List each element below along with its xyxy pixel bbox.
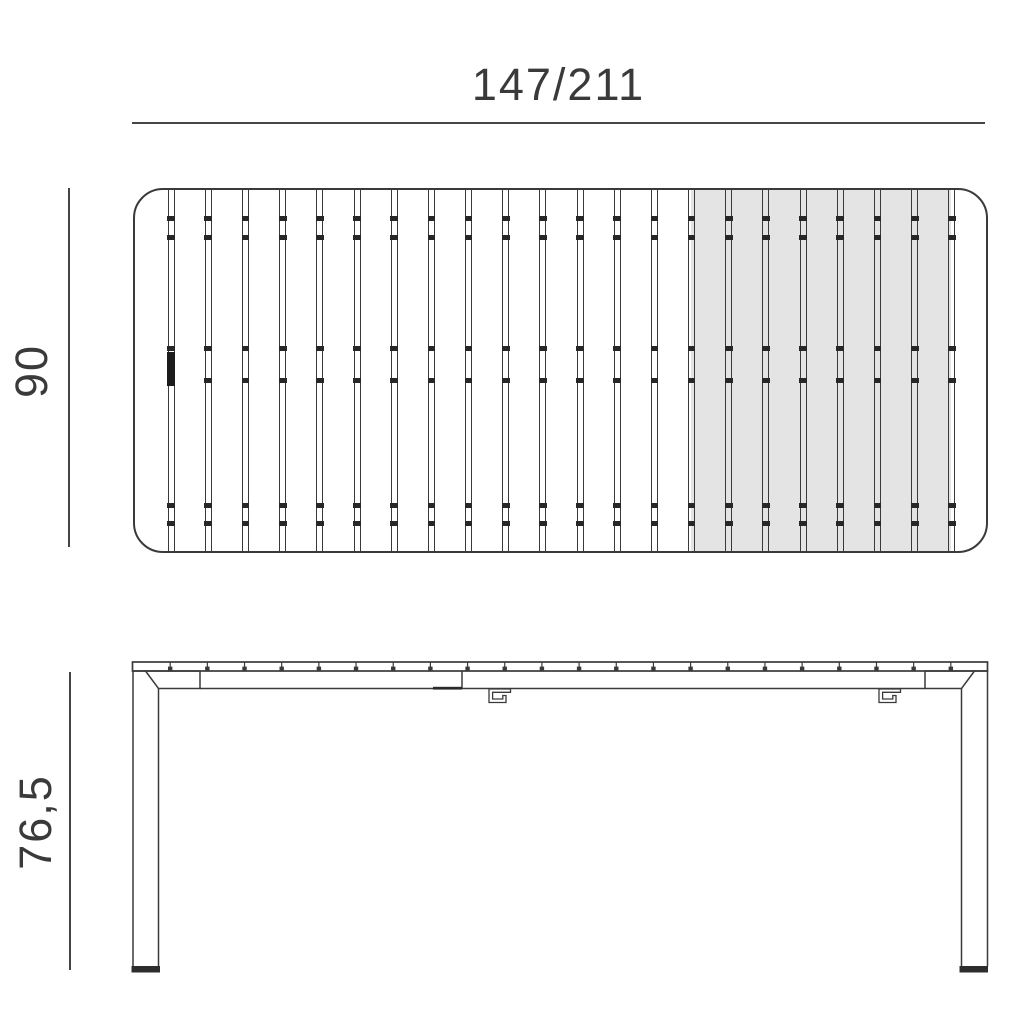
- slat-joint-tick: [836, 503, 844, 508]
- slat-joint-tick: [242, 521, 250, 526]
- side-left-hook: [489, 689, 511, 703]
- slat-joint-tick: [613, 346, 621, 351]
- slat-joint-tick: [204, 521, 212, 526]
- slat-joint-tick: [948, 503, 956, 508]
- slat-joint-tick: [576, 216, 584, 221]
- slat-joint-tick: [688, 521, 696, 526]
- dimension-line-length: [132, 122, 985, 124]
- slat-joint-tick: [725, 503, 733, 508]
- slat-joint-tick: [502, 216, 510, 221]
- slat-divider: [242, 190, 249, 551]
- slat-joint-tick: [502, 235, 510, 240]
- slat-joint-tick: [242, 235, 250, 240]
- slat-joint-tick: [576, 235, 584, 240]
- slat-joint-tick: [390, 378, 398, 383]
- slat-joint-tick: [428, 346, 436, 351]
- slat-joint-tick: [167, 503, 175, 508]
- slat-joint-tick: [762, 503, 770, 508]
- slat-divider: [465, 190, 472, 551]
- slat-joint-tick: [353, 378, 361, 383]
- slat-joint-tick: [353, 346, 361, 351]
- slat-joint-tick: [836, 346, 844, 351]
- slat-joint-tick: [242, 216, 250, 221]
- dimension-line-depth: [68, 188, 70, 547]
- side-tabletop-slab: [133, 662, 988, 671]
- slat-joint-tick: [762, 378, 770, 383]
- slat-joint-tick: [874, 216, 882, 221]
- slat-joint-tick: [613, 216, 621, 221]
- slat-joint-tick: [465, 503, 473, 508]
- slat-joint-tick: [874, 346, 882, 351]
- slat-joint-tick: [279, 378, 287, 383]
- slat-joint-tick: [948, 235, 956, 240]
- slat-joint-tick: [725, 235, 733, 240]
- side-slat-joints: [168, 663, 953, 672]
- slat-joint-tick: [836, 235, 844, 240]
- slat-joint-tick: [353, 521, 361, 526]
- slat-joint-tick: [316, 235, 324, 240]
- side-right-bracket: [925, 671, 975, 689]
- slat-joint-tick: [762, 346, 770, 351]
- slat-joint-tick: [799, 378, 807, 383]
- slat-joint-tick: [688, 235, 696, 240]
- slat-joint-tick: [948, 378, 956, 383]
- slat-joint-tick: [651, 346, 659, 351]
- slat-joint-tick: [613, 503, 621, 508]
- slat-joint-tick: [651, 378, 659, 383]
- slat-joint-tick: [390, 235, 398, 240]
- slat-joint-tick: [539, 378, 547, 383]
- slat-joint-tick: [465, 378, 473, 383]
- slat-divider: [874, 190, 881, 551]
- slat-divider: [651, 190, 658, 551]
- slat-joint-tick: [204, 378, 212, 383]
- slat-joint-tick: [613, 378, 621, 383]
- slat-joint-tick: [576, 346, 584, 351]
- dimension-label-length: 147/211: [132, 62, 985, 107]
- slat-joint-tick: [428, 235, 436, 240]
- side-right-hook: [879, 689, 901, 703]
- slat-divider: [725, 190, 732, 551]
- side-left-foot: [132, 966, 161, 973]
- slat-joint-tick: [465, 216, 473, 221]
- slat-joint-tick: [725, 346, 733, 351]
- slat-joint-tick: [576, 521, 584, 526]
- slat-joint-tick: [836, 216, 844, 221]
- slat-joint-tick: [428, 503, 436, 508]
- slat-joint-tick: [613, 235, 621, 240]
- slat-divider: [502, 190, 509, 551]
- slat-joint-tick: [799, 346, 807, 351]
- slat-joint-tick: [911, 378, 919, 383]
- slat-joint-tick: [502, 521, 510, 526]
- slat-divider: [205, 190, 212, 551]
- slat-joint-tick: [836, 378, 844, 383]
- slat-joint-tick: [316, 378, 324, 383]
- slat-joint-tick: [651, 216, 659, 221]
- slat-divider: [948, 190, 955, 551]
- slat-divider: [391, 190, 398, 551]
- side-rail-stop: [433, 687, 462, 690]
- slat-joint-tick: [911, 521, 919, 526]
- slat-joint-tick: [799, 521, 807, 526]
- slat-joint-tick: [316, 521, 324, 526]
- slat-joint-tick: [799, 216, 807, 221]
- side-right-foot: [960, 966, 989, 973]
- slat-joint-tick: [874, 521, 882, 526]
- technical-drawing: 147/211 90 76,5: [0, 0, 1024, 1024]
- slat-joint-tick: [465, 346, 473, 351]
- slat-joint-tick: [204, 235, 212, 240]
- slat-divider: [837, 190, 844, 551]
- slat-joint-tick: [874, 235, 882, 240]
- slat-divider: [762, 190, 769, 551]
- slat-joint-tick: [465, 521, 473, 526]
- slat-joint-tick: [204, 216, 212, 221]
- slat-joint-tick: [428, 216, 436, 221]
- extension-latch-mark: [167, 352, 175, 386]
- slat-joint-tick: [874, 378, 882, 383]
- dimension-label-depth: 90: [9, 221, 57, 521]
- slat-joint-tick: [428, 521, 436, 526]
- slat-joint-tick: [204, 503, 212, 508]
- slat-joint-tick: [390, 346, 398, 351]
- slat-joint-tick: [911, 216, 919, 221]
- slat-joint-tick: [502, 378, 510, 383]
- slat-divider: [688, 190, 695, 551]
- slat-joint-tick: [651, 503, 659, 508]
- slat-joint-tick: [279, 216, 287, 221]
- slat-joint-tick: [204, 346, 212, 351]
- slat-joint-tick: [242, 503, 250, 508]
- side-left-leg: [133, 671, 159, 967]
- side-left-bracket: [146, 671, 201, 689]
- slat-divider: [168, 190, 175, 551]
- slat-joint-tick: [799, 503, 807, 508]
- slat-joint-tick: [576, 503, 584, 508]
- slat-joint-tick: [167, 346, 175, 351]
- slat-joint-tick: [688, 346, 696, 351]
- slat-joint-tick: [911, 235, 919, 240]
- slat-joint-tick: [316, 346, 324, 351]
- slat-joint-tick: [688, 503, 696, 508]
- slat-joint-tick: [279, 346, 287, 351]
- slat-joint-tick: [911, 346, 919, 351]
- slat-joint-tick: [279, 235, 287, 240]
- slat-joint-tick: [316, 503, 324, 508]
- slat-joint-tick: [725, 521, 733, 526]
- slat-joint-tick: [539, 503, 547, 508]
- slat-divider: [354, 190, 361, 551]
- slat-joint-tick: [167, 521, 175, 526]
- slat-joint-tick: [539, 346, 547, 351]
- slat-joint-tick: [316, 216, 324, 221]
- slat-joint-tick: [167, 216, 175, 221]
- slat-divider: [911, 190, 918, 551]
- slat-joint-tick: [688, 378, 696, 383]
- slat-joint-tick: [762, 235, 770, 240]
- slat-joint-tick: [167, 235, 175, 240]
- slat-divider: [800, 190, 807, 551]
- slat-joint-tick: [688, 216, 696, 221]
- slat-joint-tick: [465, 235, 473, 240]
- slat-joint-tick: [874, 503, 882, 508]
- slat-joint-tick: [353, 216, 361, 221]
- dimension-label-height: 76,5: [13, 672, 61, 972]
- slat-joint-tick: [390, 503, 398, 508]
- slat-joint-tick: [613, 521, 621, 526]
- slat-joint-tick: [353, 235, 361, 240]
- slat-joint-tick: [279, 521, 287, 526]
- slat-joint-tick: [242, 346, 250, 351]
- slat-joint-tick: [725, 378, 733, 383]
- slat-divider: [279, 190, 286, 551]
- slat-joint-tick: [948, 346, 956, 351]
- slat-joint-tick: [799, 235, 807, 240]
- slat-joint-tick: [725, 216, 733, 221]
- slat-joint-tick: [651, 235, 659, 240]
- slat-divider: [539, 190, 546, 551]
- slat-joint-tick: [242, 378, 250, 383]
- slat-joint-tick: [539, 235, 547, 240]
- slat-joint-tick: [576, 378, 584, 383]
- slat-joint-tick: [762, 216, 770, 221]
- slat-joint-tick: [651, 521, 659, 526]
- slat-joint-tick: [948, 521, 956, 526]
- slat-joint-tick: [428, 378, 436, 383]
- slat-divider: [614, 190, 621, 551]
- slat-joint-tick: [539, 521, 547, 526]
- slat-joint-tick: [539, 216, 547, 221]
- side-right-leg: [962, 671, 988, 967]
- slat-joint-tick: [762, 521, 770, 526]
- table-top-view: [133, 188, 988, 553]
- slat-joint-tick: [502, 346, 510, 351]
- slat-joint-tick: [390, 216, 398, 221]
- slat-joint-tick: [502, 503, 510, 508]
- slat-divider: [428, 190, 435, 551]
- slat-divider: [316, 190, 323, 551]
- slat-joint-tick: [836, 521, 844, 526]
- slat-joint-tick: [911, 503, 919, 508]
- slat-joint-tick: [390, 521, 398, 526]
- slat-joint-tick: [948, 216, 956, 221]
- slat-divider: [577, 190, 584, 551]
- dimension-line-height: [69, 672, 71, 970]
- slat-joint-tick: [353, 503, 361, 508]
- slat-joint-tick: [279, 503, 287, 508]
